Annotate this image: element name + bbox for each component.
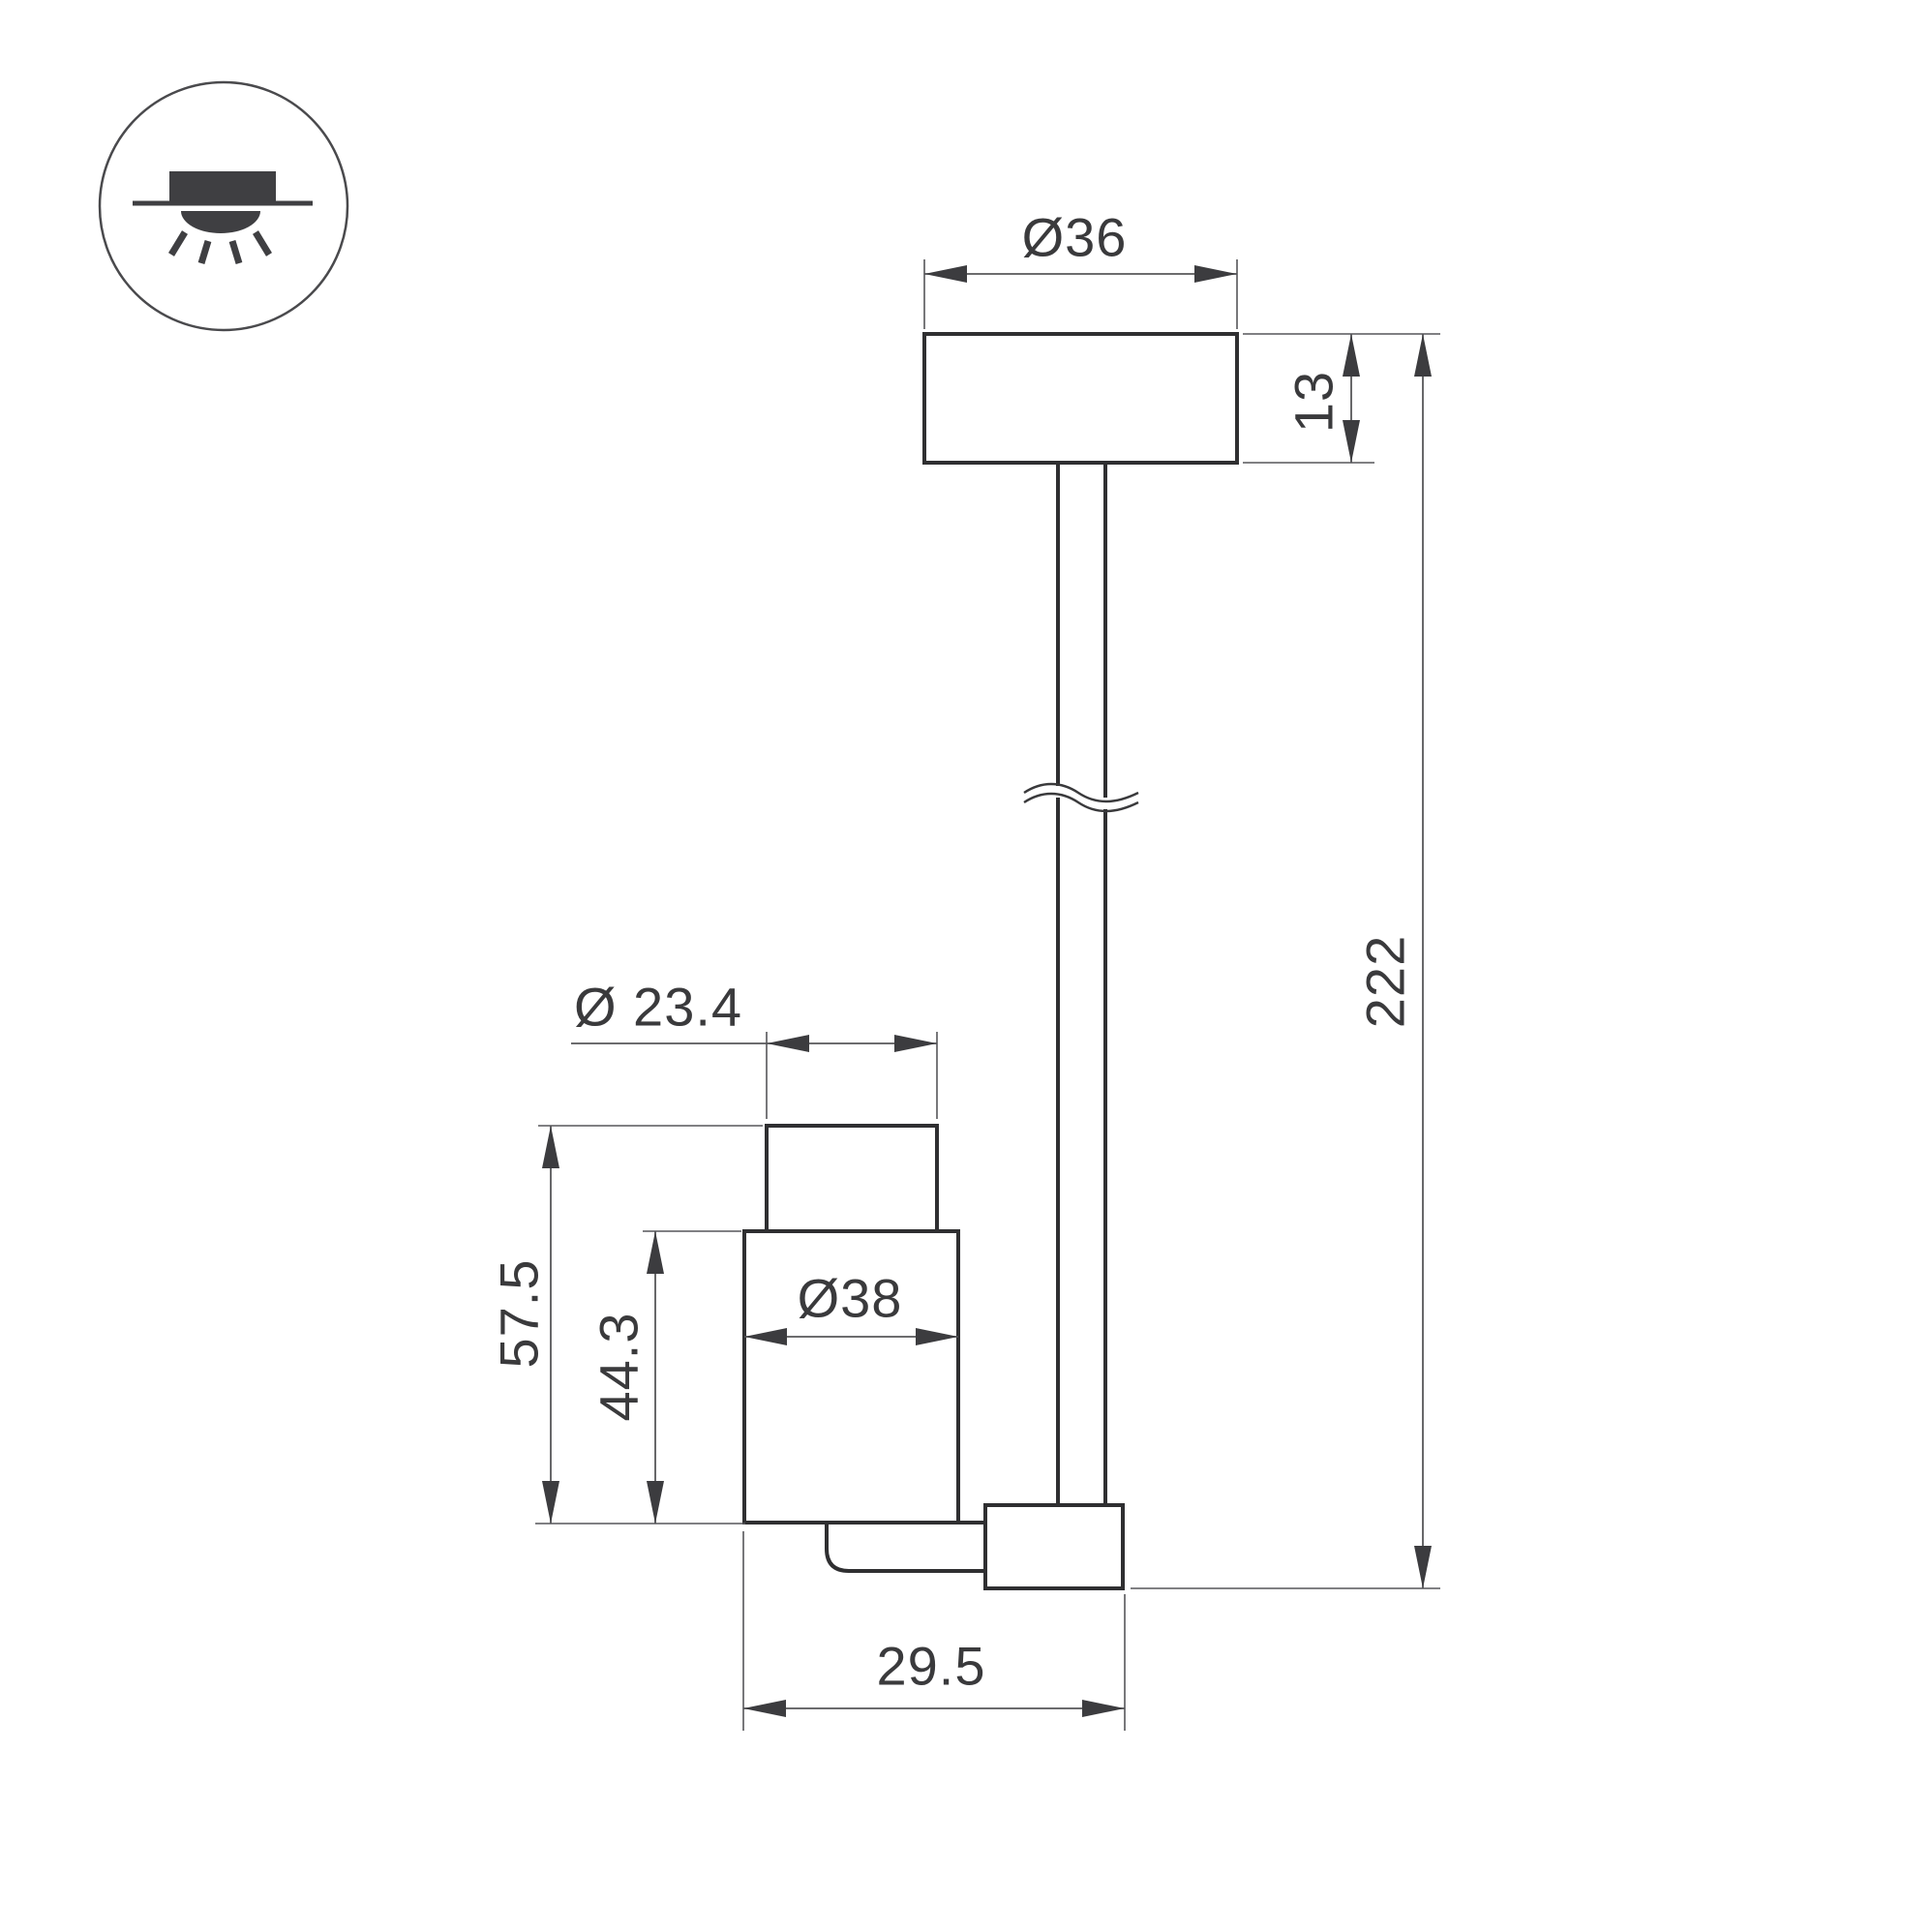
arrow-up-icon xyxy=(1343,334,1360,377)
elbow-arm-outline xyxy=(827,1523,985,1571)
break-symbol-lower-wave xyxy=(1024,794,1138,811)
dim-head-body-height: 44.3 xyxy=(535,1231,745,1524)
drawing-svg: Ø36 13 222 Ø 23.4 xyxy=(0,0,1932,1932)
arrow-right-icon xyxy=(1194,265,1237,283)
dim-label-head-top-diameter: Ø 23.4 xyxy=(574,977,742,1038)
dim-canopy-diameter: Ø36 xyxy=(924,207,1237,330)
arrow-up-icon xyxy=(542,1126,559,1168)
dim-label-canopy-height: 13 xyxy=(1283,371,1344,433)
fixture-drawing xyxy=(744,334,1237,1588)
arrow-right-icon xyxy=(1082,1700,1125,1717)
dim-label-foot-width: 29.5 xyxy=(877,1636,986,1697)
recessed-downlight-icon xyxy=(100,82,347,330)
dim-canopy-height: 13 xyxy=(1243,334,1440,463)
arrow-left-icon xyxy=(743,1700,786,1717)
arrow-right-icon xyxy=(894,1035,937,1052)
dim-label-head-height: 57.5 xyxy=(489,1259,550,1369)
dim-label-overall-height: 222 xyxy=(1355,935,1416,1028)
technical-drawing-page: Ø36 13 222 Ø 23.4 xyxy=(0,0,1932,1932)
arrow-left-icon xyxy=(767,1035,809,1052)
arrow-down-icon xyxy=(1343,420,1360,463)
dim-label-head-body-height: 44.3 xyxy=(589,1313,649,1422)
dim-head-top-diameter: Ø 23.4 xyxy=(571,977,937,1120)
icon-housing-box xyxy=(169,171,276,201)
canopy-outline xyxy=(924,334,1237,463)
dim-label-head-body-diameter: Ø38 xyxy=(798,1268,903,1329)
dim-label-canopy-diameter: Ø36 xyxy=(1022,207,1128,268)
arrow-left-icon xyxy=(924,265,967,283)
arrow-up-icon xyxy=(1414,334,1432,377)
arrow-up-icon xyxy=(647,1231,664,1274)
arrow-down-icon xyxy=(647,1481,664,1524)
dim-overall-height: 222 xyxy=(1131,334,1440,1588)
head-top-cylinder-outline xyxy=(767,1126,937,1231)
icon-border-circle xyxy=(100,82,347,330)
arrow-down-icon xyxy=(1414,1546,1432,1588)
break-symbol-upper-wave xyxy=(1024,784,1138,801)
foot-connector-outline xyxy=(985,1505,1123,1588)
extension-lines xyxy=(924,259,1237,329)
arrow-down-icon xyxy=(542,1481,559,1524)
